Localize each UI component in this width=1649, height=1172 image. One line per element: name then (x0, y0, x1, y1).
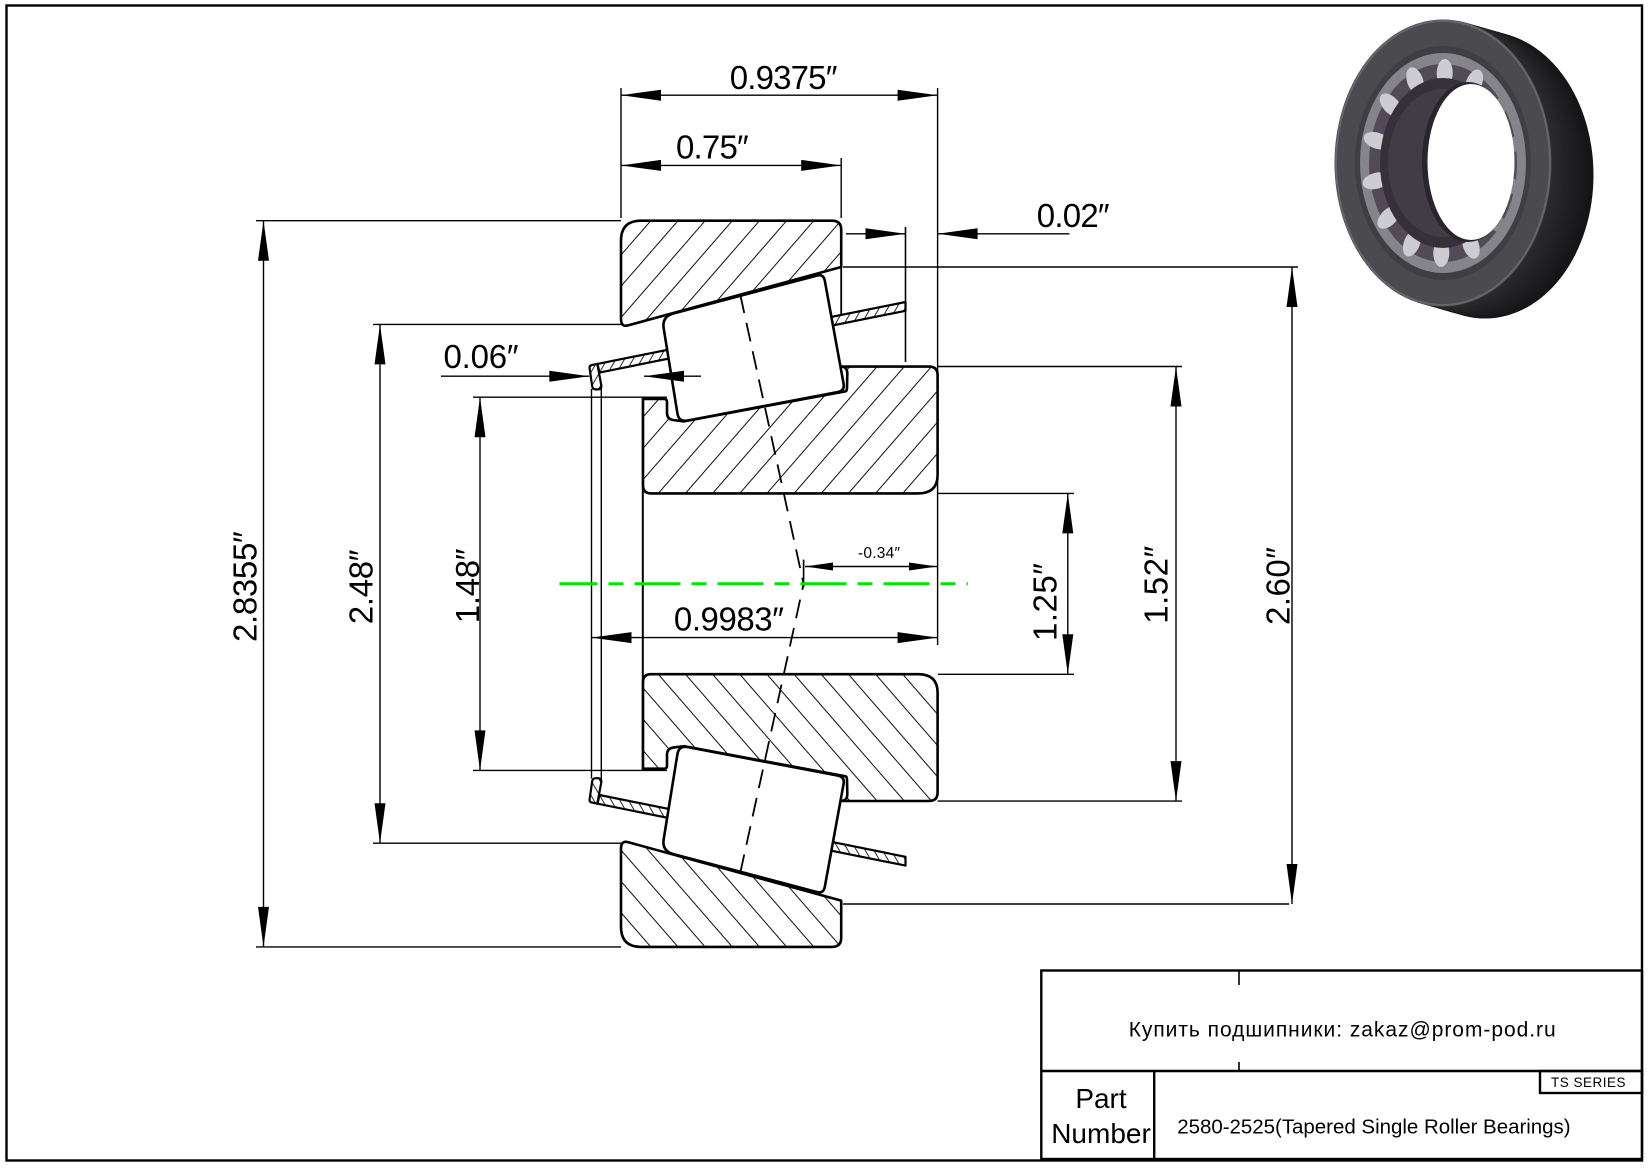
svg-text:2.48″: 2.48″ (343, 549, 380, 624)
svg-text:TS SERIES: TS SERIES (1551, 1075, 1626, 1090)
svg-text:1.48″: 1.48″ (449, 548, 486, 623)
svg-text:Part: Part (1075, 1083, 1127, 1114)
svg-text:2.8355″: 2.8355″ (226, 531, 263, 642)
svg-text:-0.34″: -0.34″ (858, 545, 901, 562)
svg-text:1.52″: 1.52″ (1137, 545, 1174, 623)
svg-text:0.75″: 0.75″ (676, 129, 749, 166)
svg-text:2.60″: 2.60″ (1260, 547, 1297, 625)
svg-text:0.9983″: 0.9983″ (674, 601, 784, 638)
svg-text:2580-2525(Tapered Single Rolle: 2580-2525(Tapered Single Roller Bearings… (1177, 1116, 1570, 1139)
svg-text:Купить подшипники: zakaz@prom-: Купить подшипники: zakaz@prom-pod.ru (1129, 1019, 1556, 1042)
svg-text:Number: Number (1051, 1118, 1151, 1149)
svg-text:0.9375″: 0.9375″ (730, 59, 838, 96)
svg-text:0.06″: 0.06″ (444, 338, 519, 375)
svg-text:1.25″: 1.25″ (1027, 563, 1064, 641)
svg-text:0.02″: 0.02″ (1037, 197, 1110, 234)
